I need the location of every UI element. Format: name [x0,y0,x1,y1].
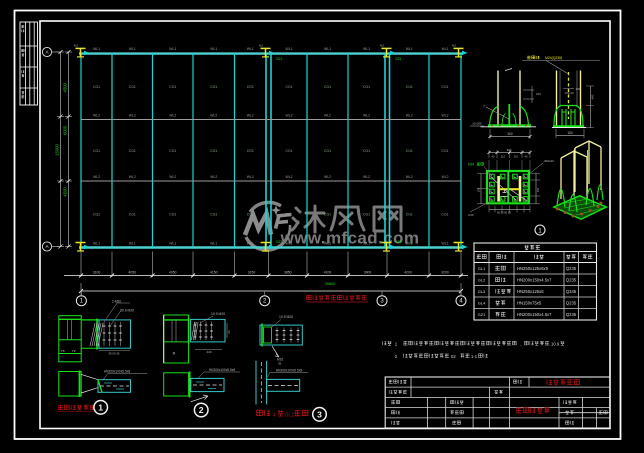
svg-text:35 60 35: 35 60 35 [109,352,120,356]
svg-text:C40: C40 [468,213,474,217]
svg-text:CG1: CG1 [406,213,413,217]
svg-text:CG1: CG1 [129,213,136,217]
svg-text:1: 1 [98,402,103,412]
svg-text:WL1: WL1 [247,241,254,245]
svg-text:CG1: CG1 [286,213,293,217]
svg-text:CG1: CG1 [286,149,293,153]
svg-text:CG1: CG1 [442,213,449,217]
svg-text:CG1: CG1 [324,213,331,217]
svg-text:WL2: WL2 [247,175,254,179]
svg-text:GZ1: GZ1 [276,240,283,244]
svg-text:4100: 4100 [324,270,332,274]
svg-text:-300x20: -300x20 [543,159,554,163]
svg-text:WL2: WL2 [129,175,136,179]
svg-text:HN200x100x5.5x8: HN200x100x5.5x8 [104,369,130,373]
svg-text:HN200x150x4.5x7: HN200x150x4.5x7 [517,312,552,317]
svg-text:CG1: CG1 [247,213,254,217]
svg-text:1: 1 [538,227,542,234]
svg-text:4500: 4500 [63,187,68,197]
svg-text:GL1: GL1 [478,266,486,271]
svg-text:HN250x125x6x9: HN250x125x6x9 [517,266,549,271]
svg-text:35: 35 [278,362,282,366]
svg-text:WL1: WL1 [169,241,176,245]
svg-text:GL2: GL2 [478,277,486,282]
svg-text:Q235: Q235 [566,266,577,271]
svg-text:2: 2 [199,405,204,415]
svg-text:CG1: CG1 [210,149,217,153]
svg-text:WL2: WL2 [286,113,293,117]
svg-text:WL1: WL1 [286,47,293,51]
svg-text:WL1: WL1 [169,47,176,51]
svg-text:WL2: WL2 [406,113,413,117]
svg-text:4: 4 [273,412,276,418]
svg-text:GZ1: GZ1 [478,312,487,317]
svg-text:CG1: CG1 [129,85,136,89]
svg-text:WL1: WL1 [247,47,254,51]
svg-text:T2: T2 [72,349,76,353]
svg-text:HN150x75x5: HN150x75x5 [517,301,542,306]
svg-text:WL1: WL1 [324,47,331,51]
svg-text:WL2: WL2 [363,113,370,117]
svg-text:60 90 90 60: 60 90 90 60 [497,211,511,215]
svg-text:CG1: CG1 [247,149,254,153]
svg-text:WL1: WL1 [324,241,331,245]
svg-text:±0.000: ±0.000 [472,122,481,126]
svg-text:CG1: CG1 [406,85,413,89]
svg-text:WL2: WL2 [210,113,217,117]
svg-text:CG1: CG1 [93,149,100,153]
svg-text:Q235: Q235 [566,301,577,306]
svg-text:3: 3 [317,409,322,419]
svg-text:15000: 15000 [55,144,60,156]
svg-text:10.9 M20: 10.9 M20 [211,312,225,316]
svg-text:CG1: CG1 [324,85,331,89]
svg-text:6000: 6000 [63,125,68,135]
svg-text:WL2: WL2 [442,113,449,117]
svg-text:GL2: GL2 [285,412,295,418]
svg-text:110: 110 [501,155,506,159]
svg-text:170x10: 170x10 [564,91,574,95]
svg-text:490: 490 [591,94,595,99]
svg-text:CG1: CG1 [169,85,176,89]
svg-text:60: 60 [227,330,231,334]
svg-text:M2: M2 [452,44,456,48]
svg-text:7: 7 [483,105,485,109]
svg-text:WL1: WL1 [210,47,217,51]
svg-text:39600: 39600 [325,282,336,286]
svg-text:WL2: WL2 [442,175,449,179]
svg-text:www.mfcad.com: www.mfcad.com [280,229,420,248]
svg-text:4150: 4150 [210,270,218,274]
svg-text:WL2: WL2 [93,113,100,117]
svg-text:WL1: WL1 [286,241,293,245]
svg-text:WL1: WL1 [129,241,136,245]
svg-text:WL1: WL1 [129,47,136,51]
svg-text:WL2: WL2 [129,113,136,117]
svg-text:WL1: WL1 [363,241,370,245]
svg-text:GL3: GL3 [478,289,486,294]
svg-text:CG1: CG1 [363,85,370,89]
svg-text:3100: 3100 [93,270,101,274]
svg-text:CG1: CG1 [286,85,293,89]
svg-text:WL2: WL2 [169,113,176,117]
svg-text:HN250x125x6: HN250x125x6 [517,289,544,294]
svg-text:WL2: WL2 [247,113,254,117]
svg-text:4050: 4050 [169,270,177,274]
svg-text:WL2: WL2 [210,175,217,179]
svg-text:CG1: CG1 [442,85,449,89]
svg-text:100: 100 [576,87,581,91]
svg-text:2-M20: 2-M20 [112,299,121,303]
svg-text:M2: M2 [259,44,263,48]
svg-text:3200: 3200 [441,270,449,274]
svg-text:GZ1: GZ1 [276,57,283,61]
svg-text:M2: M2 [380,44,384,48]
svg-text:CG1: CG1 [442,149,449,153]
svg-text:WL1: WL1 [406,241,413,245]
svg-text:GZ1: GZ1 [395,240,402,244]
svg-text:CG1: CG1 [129,149,136,153]
svg-text:M2: M2 [74,44,78,48]
svg-text:WL2: WL2 [169,175,176,179]
svg-text:240: 240 [206,350,211,354]
svg-text:M24(Q235): M24(Q235) [545,56,562,60]
svg-text:250: 250 [477,187,481,192]
svg-text:3850: 3850 [284,270,292,274]
svg-text:CG1: CG1 [324,149,331,153]
svg-text:WL1: WL1 [93,241,100,245]
svg-text:WL1: WL1 [406,47,413,51]
svg-text:HN200x100x5.5x8: HN200x100x5.5x8 [209,368,235,372]
svg-text:WL1: WL1 [93,47,100,51]
svg-text:150: 150 [567,131,573,135]
svg-text:Q345: Q345 [566,289,577,294]
svg-text:10.9: 10.9 [551,341,560,346]
svg-text:10.9 M20: 10.9 M20 [279,315,293,319]
svg-text:Q235: Q235 [566,278,577,283]
svg-text:M: M [173,351,176,355]
svg-text:WL2: WL2 [286,175,293,179]
svg-text:02: 02 [451,354,456,359]
svg-text:WL2: WL2 [363,175,370,179]
svg-text:4200: 4200 [404,270,412,274]
svg-text:WL2: WL2 [324,175,331,179]
svg-text:CG1: CG1 [169,149,176,153]
svg-text:CG1: CG1 [210,213,217,217]
svg-text:T6: T6 [61,349,65,353]
svg-text:150: 150 [536,92,541,96]
svg-text:WL2: WL2 [324,113,331,117]
svg-text:CG1: CG1 [93,213,100,217]
svg-text:WL1: WL1 [442,241,449,245]
svg-text:M24: M24 [468,163,474,167]
svg-text:4050: 4050 [128,270,136,274]
svg-text:HN200x100x5.5x8: HN200x100x5.5x8 [276,369,302,373]
svg-text:WL1: WL1 [363,47,370,51]
svg-text:1-1: 1-1 [471,354,478,359]
svg-text:250: 250 [536,187,540,192]
svg-text:CG1: CG1 [210,85,217,89]
svg-text:,: , [520,341,521,346]
svg-text:3900: 3900 [364,270,372,274]
svg-text:3150: 3150 [248,270,256,274]
svg-text:Q235: Q235 [566,312,577,317]
svg-text:GL4: GL4 [478,300,486,305]
svg-text:CG1: CG1 [363,149,370,153]
svg-text:110: 110 [514,155,519,159]
svg-text:WL1: WL1 [442,47,449,51]
svg-text:CG1: CG1 [363,213,370,217]
svg-text:300: 300 [507,132,513,136]
svg-text:CG1: CG1 [247,85,254,89]
svg-text:WL2: WL2 [406,175,413,179]
svg-text:4500: 4500 [63,82,68,92]
svg-text:CG1: CG1 [169,213,176,217]
svg-text:CG1: CG1 [93,85,100,89]
svg-text:HN200x150x4.5x7: HN200x150x4.5x7 [517,278,552,283]
svg-text:GZ1: GZ1 [395,57,402,61]
svg-text:300: 300 [506,148,511,152]
svg-text:CG1: CG1 [406,149,413,153]
svg-text:WL2: WL2 [93,175,100,179]
svg-text:WL1: WL1 [210,241,217,245]
